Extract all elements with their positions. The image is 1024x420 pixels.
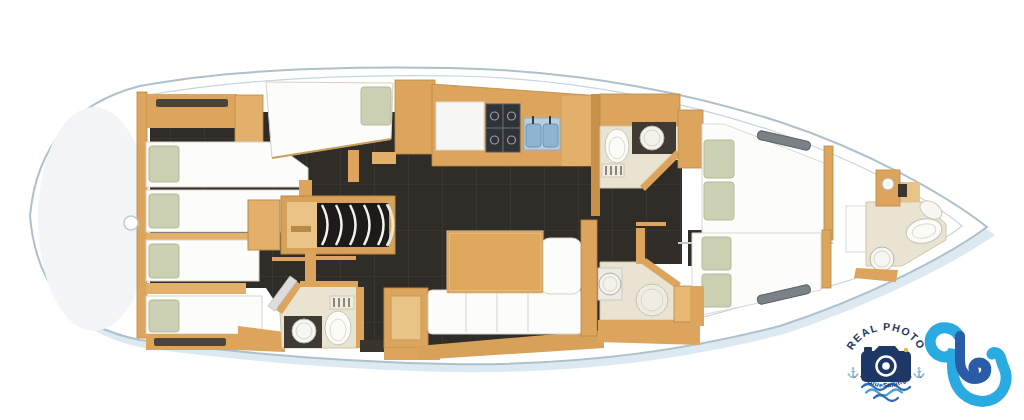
yacht-floorplan-page: REAL PHOTO ⚓ ⚓ BeBlueSailing.it xyxy=(0,0,1024,420)
companionway-seat xyxy=(248,200,280,250)
anchor-icon: ⚓ xyxy=(913,366,926,379)
bow-vanity-knob xyxy=(882,178,894,190)
aft-port-vent xyxy=(156,99,228,107)
port-head-toilet xyxy=(605,129,629,163)
head-wall-port xyxy=(591,94,600,216)
pillow xyxy=(702,274,731,307)
companionway-handle xyxy=(291,226,311,232)
saloon-sofa-chaise xyxy=(540,238,582,294)
yacht-floorplan: REAL PHOTO ⚓ ⚓ BeBlueSailing.it xyxy=(0,0,1024,420)
pillow xyxy=(149,194,179,228)
fwd-bulkhead-stbd xyxy=(822,230,831,288)
handrail-a xyxy=(272,257,306,261)
real-photo-stamp: REAL PHOTO ⚓ ⚓ BeBlueSailing.it xyxy=(840,320,932,412)
camera-lens-center xyxy=(882,362,890,370)
side-berth-cabinet xyxy=(395,80,435,154)
saloon-sofa xyxy=(428,290,582,334)
galley-worktop xyxy=(436,102,484,150)
pillow xyxy=(361,87,391,125)
fwd-bulkhead-port xyxy=(824,146,833,240)
handrail-post-c xyxy=(305,250,316,285)
aft-stbd-vent xyxy=(154,338,226,346)
sideboard-panel xyxy=(391,296,421,340)
camera-flash-dot xyxy=(904,348,908,352)
locker-dark xyxy=(360,340,384,352)
stbd-head-cabinet xyxy=(598,320,700,345)
handrail-post-d xyxy=(636,228,645,264)
pillow xyxy=(149,300,179,332)
port-head-cabinet xyxy=(600,94,680,126)
berth-step xyxy=(372,152,396,164)
companionway-landing xyxy=(287,202,317,248)
pillow xyxy=(149,244,179,278)
aft-head-wall-right xyxy=(356,287,364,348)
pillow xyxy=(149,146,179,182)
handrail-post-b xyxy=(299,180,312,197)
handrail-post-a xyxy=(348,150,359,182)
port-wardrobe xyxy=(678,110,703,168)
floorplan-shapes xyxy=(30,67,995,372)
aft-stbd-shelf xyxy=(146,283,246,294)
pillow xyxy=(704,182,734,220)
anchor-icon: ⚓ xyxy=(847,366,860,379)
pillow xyxy=(702,237,731,270)
bow-faucet xyxy=(898,184,907,197)
pillow xyxy=(704,140,734,178)
galley-sink-basin xyxy=(526,124,541,147)
aft-head-toilet xyxy=(325,311,351,345)
head-wall-stbd xyxy=(581,220,597,336)
fwd-stbd-cabinet xyxy=(690,286,704,326)
galley-sink-basin xyxy=(543,124,558,147)
dining-table xyxy=(448,232,542,292)
aft-head-wall-top xyxy=(300,281,358,287)
bebluesailing-logo xyxy=(930,328,1006,402)
stbd-head-sink xyxy=(599,273,621,295)
logo-b-outer-stroke xyxy=(930,328,1006,402)
handrail-b xyxy=(316,256,356,260)
handrail-c xyxy=(636,222,666,226)
stern-knob xyxy=(124,216,138,230)
logo-b-inner-stroke xyxy=(960,336,986,379)
